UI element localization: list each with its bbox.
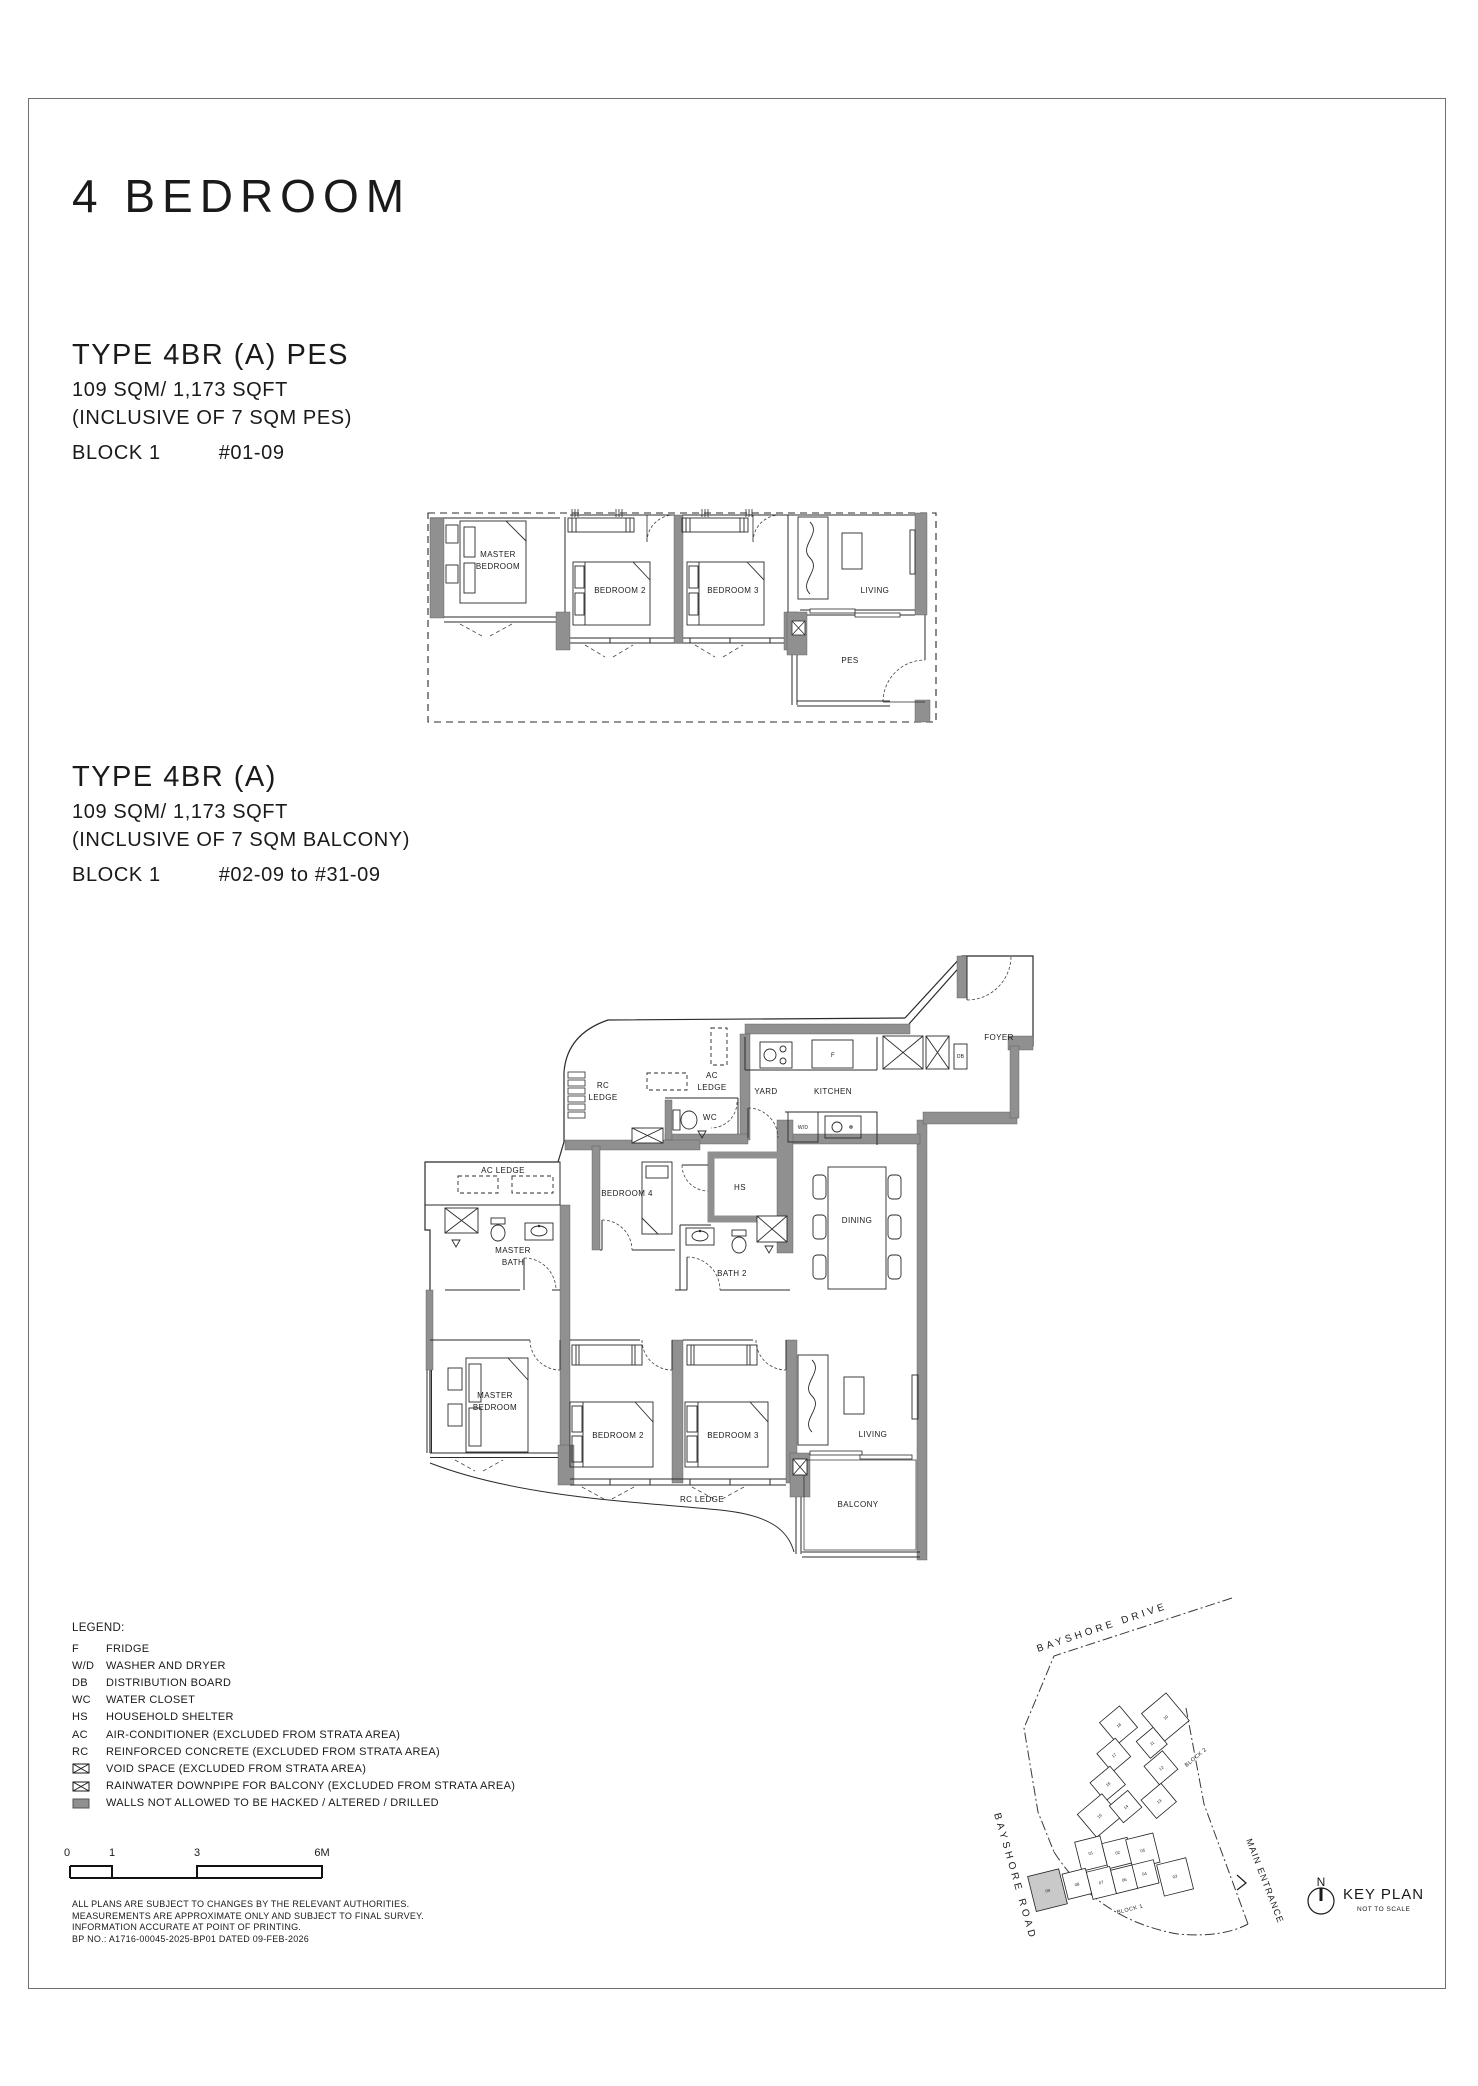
shower-trap-icon bbox=[452, 1240, 460, 1247]
north-label: N bbox=[1317, 1875, 1326, 1889]
rainwater-downpipe-icon bbox=[72, 1781, 106, 1792]
wardrobe-icon bbox=[568, 518, 634, 532]
label-washer-dryer: W/D bbox=[798, 1125, 809, 1131]
room-label-rc-ledge-bottom: RC LEDGE bbox=[680, 1495, 724, 1504]
legend-item: WALLS NOT ALLOWED TO BE HACKED / ALTERED… bbox=[72, 1795, 515, 1812]
room-label-master-bedroom: BEDROOM bbox=[473, 1403, 517, 1412]
room-label-ac-ledge: AC bbox=[706, 1071, 718, 1080]
legend-item: FFRIDGE bbox=[72, 1640, 515, 1657]
legend-text: REINFORCED CONCRETE (EXCLUDED FROM STRAT… bbox=[106, 1746, 440, 1758]
disclaimer-line: INFORMATION ACCURATE AT POINT OF PRINTIN… bbox=[72, 1922, 424, 1934]
room-label-bedroom4: BEDROOM 4 bbox=[601, 1189, 653, 1198]
door-arc bbox=[753, 515, 780, 542]
legend-abbr: AC bbox=[72, 1729, 106, 1741]
disclaimer-line: ALL PLANS ARE SUBJECT TO CHANGES BY THE … bbox=[72, 1899, 424, 1911]
room-label-hs: HS bbox=[734, 1183, 746, 1192]
legend-item: WCWATER CLOSET bbox=[72, 1692, 515, 1709]
door-arc bbox=[883, 660, 925, 702]
room-label-dining: DINING bbox=[842, 1216, 872, 1225]
sink-icon bbox=[686, 1228, 714, 1245]
void-space-icon bbox=[883, 1036, 923, 1069]
room-label-ac-ledge-left: AC LEDGE bbox=[481, 1166, 525, 1175]
room-label-bedroom2: BEDROOM 2 bbox=[592, 1431, 644, 1440]
room-label-master-bedroom: BEDROOM bbox=[476, 562, 520, 571]
legend-text: FRIDGE bbox=[106, 1643, 149, 1655]
section-type-4br-a-pes: TYPE 4BR (A) PES 109 SQM/ 1,173 SQFT (IN… bbox=[72, 338, 352, 467]
legend-abbr: RC bbox=[72, 1746, 106, 1758]
legend-item: ACAIR-CONDITIONER (EXCLUDED FROM STRATA … bbox=[72, 1726, 515, 1743]
legend-text: RAINWATER DOWNPIPE FOR BALCONY (EXCLUDED… bbox=[106, 1780, 515, 1792]
rainwater-downpipe-icon bbox=[792, 621, 805, 635]
legend-item: DBDISTRIBUTION BOARD bbox=[72, 1674, 515, 1691]
void-space-icon bbox=[72, 1763, 106, 1774]
unit-block-line: BLOCK 1#02-09 to #31-09 bbox=[72, 861, 410, 889]
legend-item: RAINWATER DOWNPIPE FOR BALCONY (EXCLUDED… bbox=[72, 1778, 515, 1795]
page-title: 4 BEDROOM bbox=[72, 169, 411, 223]
block-number: BLOCK 1 bbox=[72, 442, 161, 464]
legend-abbr: HS bbox=[72, 1711, 106, 1723]
rc-ledge-louvers bbox=[568, 1072, 585, 1118]
rainwater-downpipe-icon bbox=[793, 1459, 807, 1475]
block1-label: BLOCK 1 bbox=[1116, 1904, 1143, 1916]
room-label-bath2: BATH 2 bbox=[717, 1269, 747, 1278]
room-label-yard: YARD bbox=[754, 1087, 777, 1096]
room-label-master-bath: MASTER bbox=[495, 1246, 531, 1255]
structural-wall-icon bbox=[72, 1798, 106, 1809]
stove-icon bbox=[760, 1042, 792, 1068]
unit-numbers: #02-09 to #31-09 bbox=[219, 864, 381, 886]
window-ledge-dashes bbox=[460, 624, 743, 657]
legend-text: WALLS NOT ALLOWED TO BE HACKED / ALTERED… bbox=[106, 1797, 439, 1809]
legend: LEGEND: FFRIDGE W/DWASHER AND DRYER DBDI… bbox=[72, 1620, 515, 1812]
sofa-icon bbox=[798, 517, 828, 599]
room-label-rc-ledge: LEDGE bbox=[588, 1093, 617, 1102]
wardrobe-icon bbox=[682, 518, 748, 532]
legend-text: HOUSEHOLD SHELTER bbox=[106, 1711, 234, 1723]
wardrobe-icon bbox=[572, 1345, 642, 1365]
unit-type-title: TYPE 4BR (A) PES bbox=[72, 338, 352, 372]
rc-ledge-edge bbox=[430, 1463, 794, 1552]
legend-item: VOID SPACE (EXCLUDED FROM STRATA AREA) bbox=[72, 1760, 515, 1777]
legend-item: W/DWASHER AND DRYER bbox=[72, 1657, 515, 1674]
scale-tick-label: 1 bbox=[109, 1847, 115, 1859]
sink-icon bbox=[525, 1223, 553, 1240]
shower-trap-icon bbox=[765, 1246, 773, 1253]
room-label-master-bedroom: MASTER bbox=[480, 550, 516, 559]
room-label-master-bedroom: MASTER bbox=[477, 1391, 513, 1400]
disclaimer: ALL PLANS ARE SUBJECT TO CHANGES BY THE … bbox=[72, 1899, 424, 1945]
wardrobe-icon bbox=[687, 1345, 757, 1365]
unit-area-note: (INCLUSIVE OF 7 SQM PES) bbox=[72, 404, 352, 432]
room-label-rc-ledge: RC bbox=[597, 1081, 609, 1090]
block2-label: BLOCK 2 bbox=[1184, 1747, 1208, 1769]
scale-bar: 0 1 3 6M bbox=[66, 1842, 346, 1886]
void-space-icon bbox=[757, 1216, 787, 1242]
room-label-foyer: FOYER bbox=[984, 1033, 1014, 1042]
room-label-pes: PES bbox=[841, 656, 858, 665]
toilet-icon bbox=[732, 1230, 746, 1253]
void-space-icon bbox=[632, 1128, 663, 1143]
room-label-ac-ledge: LEDGE bbox=[697, 1083, 726, 1092]
room-label-living: LIVING bbox=[861, 586, 890, 595]
legend-text: WATER CLOSET bbox=[106, 1694, 195, 1706]
unit-area-note: (INCLUSIVE OF 7 SQM BALCONY) bbox=[72, 826, 410, 854]
void-space-icon bbox=[445, 1208, 478, 1233]
label-db: DB bbox=[957, 1054, 965, 1060]
room-label-living: LIVING bbox=[859, 1430, 888, 1439]
room-label-bedroom2: BEDROOM 2 bbox=[594, 586, 646, 595]
scale-tick-label: 0 bbox=[64, 1847, 70, 1859]
road-label-bayshore-drive: BAYSHORE DRIVE bbox=[1035, 1601, 1169, 1655]
tv-console-icon bbox=[910, 530, 915, 574]
key-plan-title: KEY PLAN bbox=[1343, 1886, 1424, 1903]
legend-abbr: WC bbox=[72, 1694, 106, 1706]
legend-text: DISTRIBUTION BOARD bbox=[106, 1677, 231, 1689]
household-shelter-walls bbox=[711, 1155, 787, 1219]
legend-text: VOID SPACE (EXCLUDED FROM STRATA AREA) bbox=[106, 1763, 366, 1775]
door-arc bbox=[647, 515, 674, 542]
floor-plan-pes: MASTER BEDROOM BEDROOM 2 BEDROOM 3 LIVIN… bbox=[420, 505, 940, 730]
north-arrow-icon: N bbox=[1308, 1875, 1334, 1914]
main-entrance-label: MAIN ENTRANCE bbox=[1244, 1837, 1286, 1925]
room-label-bedroom3: BEDROOM 3 bbox=[707, 586, 759, 595]
label-fridge: F bbox=[831, 1053, 835, 1059]
legend-abbr: F bbox=[72, 1643, 106, 1655]
scale-bar-shape bbox=[70, 1866, 322, 1878]
legend-abbr: DB bbox=[72, 1677, 106, 1689]
bed-icon bbox=[642, 1162, 672, 1234]
coffee-table-icon bbox=[842, 533, 862, 569]
key-plan: BAYSHORE DRIVE BAYSHORE ROAD MAIN ENTRAN… bbox=[950, 1590, 1450, 1975]
legend-text: AIR-CONDITIONER (EXCLUDED FROM STRATA AR… bbox=[106, 1729, 400, 1741]
entrance-arrow-icon bbox=[1237, 1875, 1246, 1890]
disclaimer-line: BP NO.: A1716-00045-2025-BP01 DATED 09-F… bbox=[72, 1934, 424, 1946]
legend-title: LEGEND: bbox=[72, 1620, 515, 1636]
floor-plan-main: RC LEDGE AC LEDGE WC YARD KITCHEN FOYER … bbox=[320, 940, 820, 1580]
room-label-wc: WC bbox=[703, 1113, 717, 1122]
section-type-4br-a: TYPE 4BR (A) 109 SQM/ 1,173 SQFT (INCLUS… bbox=[72, 760, 410, 889]
legend-abbr: W/D bbox=[72, 1660, 106, 1672]
key-plan-subtitle: NOT TO SCALE bbox=[1357, 1906, 1410, 1913]
unit-block-line: BLOCK 1#01-09 bbox=[72, 439, 352, 467]
unit-numbers: #01-09 bbox=[219, 442, 285, 464]
legend-item: RCREINFORCED CONCRETE (EXCLUDED FROM STR… bbox=[72, 1743, 515, 1760]
room-label-bedroom3: BEDROOM 3 bbox=[707, 1431, 759, 1440]
disclaimer-line: MEASUREMENTS ARE APPROXIMATE ONLY AND SU… bbox=[72, 1911, 424, 1923]
void-space-icon bbox=[926, 1036, 949, 1069]
unit-type-title: TYPE 4BR (A) bbox=[72, 760, 410, 794]
legend-text: WASHER AND DRYER bbox=[106, 1660, 226, 1672]
block1-cluster: 01 02 05 04 03 06 07 08 09 BLOCK 1 bbox=[1022, 1817, 1195, 1935]
scale-tick-label: 3 bbox=[194, 1847, 200, 1859]
toilet-icon bbox=[673, 1110, 697, 1130]
legend-item: HSHOUSEHOLD SHELTER bbox=[72, 1709, 515, 1726]
room-label-master-bath: BATH bbox=[502, 1258, 524, 1267]
scale-tick-label: 6M bbox=[314, 1847, 329, 1859]
block-number: BLOCK 1 bbox=[72, 864, 161, 886]
unit-area: 109 SQM/ 1,173 SQFT bbox=[72, 376, 352, 404]
room-label-kitchen: KITCHEN bbox=[814, 1087, 852, 1096]
room-label-balcony: BALCONY bbox=[837, 1500, 878, 1509]
toilet-icon bbox=[491, 1218, 505, 1241]
unit-area: 109 SQM/ 1,173 SQFT bbox=[72, 798, 410, 826]
